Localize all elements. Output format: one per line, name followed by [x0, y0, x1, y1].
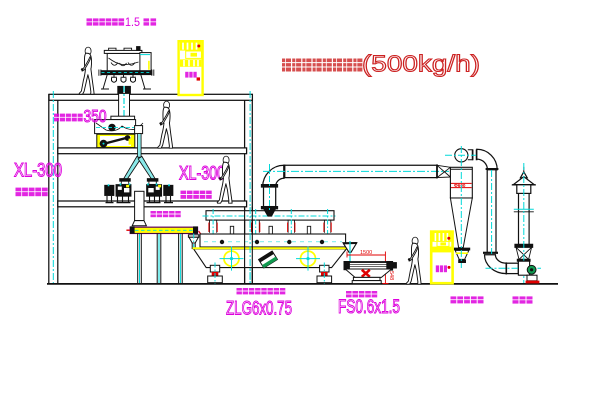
svg-text:548: 548 [388, 271, 394, 280]
svg-text:Φ600: Φ600 [454, 183, 466, 188]
svg-text:ZLG6x0.75: ZLG6x0.75 [226, 298, 292, 320]
svg-text:1.5: 1.5 [125, 17, 140, 29]
svg-text:(500kg/h): (500kg/h) [362, 51, 480, 77]
svg-text:FS0.6x1.5: FS0.6x1.5 [338, 296, 400, 318]
svg-text:XL-300: XL-300 [179, 164, 225, 185]
svg-text:350: 350 [84, 106, 107, 126]
svg-text:1500: 1500 [360, 250, 372, 256]
svg-text:XL-300: XL-300 [14, 160, 62, 182]
